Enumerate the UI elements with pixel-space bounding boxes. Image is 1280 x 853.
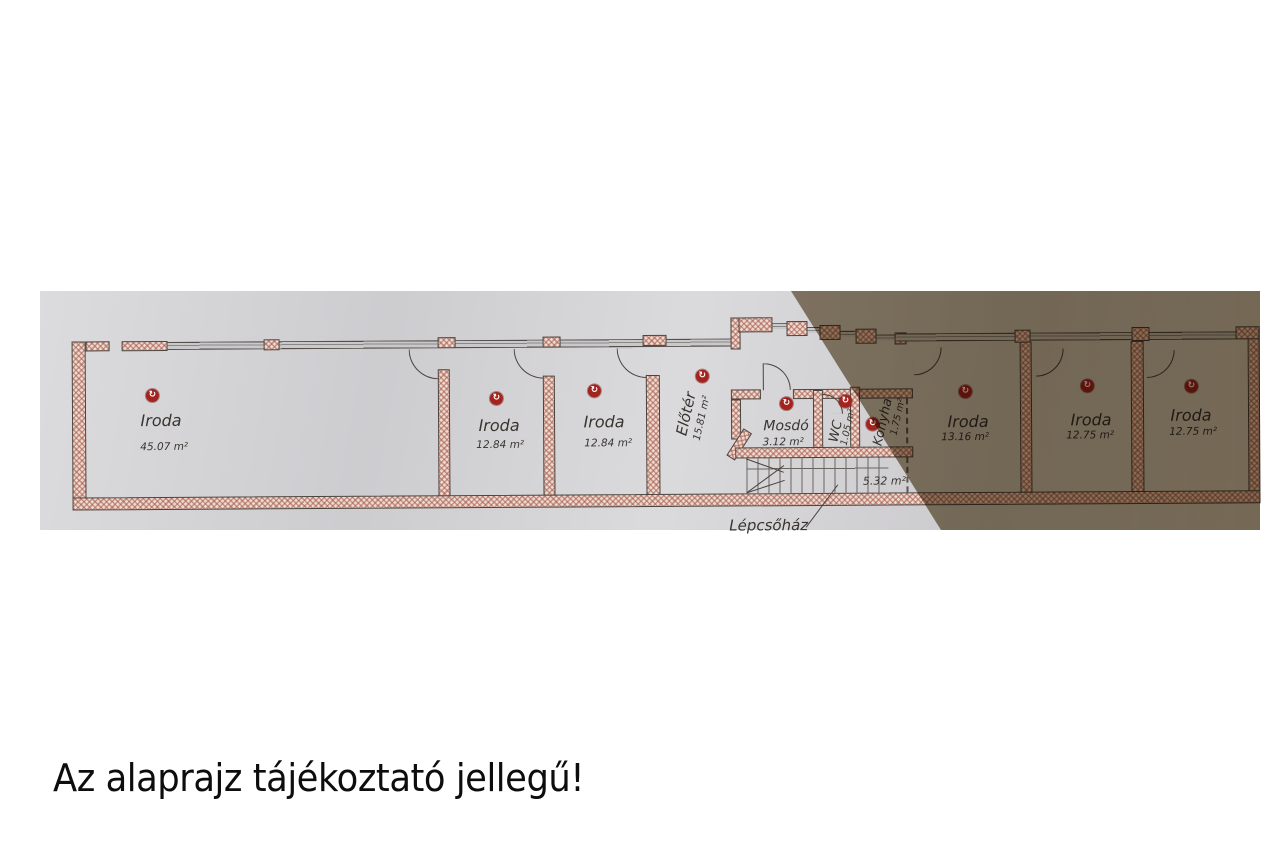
- door-arc: [514, 349, 544, 379]
- door-arc: [409, 349, 439, 379]
- room-name: Iroda: [116, 411, 206, 431]
- window-mullion-block: [1131, 327, 1149, 341]
- stairs-label: Lépcsőház: [719, 516, 819, 535]
- room-area: 45.07 m²: [119, 441, 209, 454]
- entry-wall-step: [819, 325, 840, 340]
- room-name: Iroda: [1146, 405, 1236, 425]
- wall-left: [72, 341, 87, 510]
- wall-bottom: [73, 490, 1261, 510]
- camera-marker: ↻: [588, 384, 601, 397]
- room-name: Iroda: [923, 412, 1013, 432]
- entry-window: [807, 327, 819, 333]
- wall-top-right-corner: [1235, 326, 1259, 339]
- room-area: 13.16 m²: [920, 431, 1010, 444]
- window-mullion-block: [543, 337, 561, 348]
- window-mullion-block: [264, 339, 280, 350]
- window-mullion-block: [643, 335, 667, 346]
- mosdo-top-wall: [731, 389, 761, 399]
- camera-marker: ↻: [1185, 380, 1198, 393]
- room-area: 12.84 m²: [455, 439, 545, 452]
- camera-marker: ↻: [1081, 379, 1094, 392]
- floorplan-drawing: ↻ ↻ ↻ ↻ ↻ ↻ ↻ ↻ ↻ ↻ Iroda 45.07 m² Iroda…: [39, 287, 1260, 533]
- disclaimer-caption: Az alaprajz tájékoztató jellegű!: [53, 756, 584, 800]
- partition-wall: [646, 375, 661, 495]
- room-area: 12.75 m²: [1045, 429, 1135, 442]
- room-area: 3.12 m²: [738, 436, 828, 449]
- wall-right: [1248, 328, 1261, 491]
- room-name: Iroda: [1046, 410, 1136, 430]
- room-name: Iroda: [559, 412, 649, 432]
- room-name: Mosdó: [741, 418, 831, 435]
- entry-door-leaf: [763, 363, 764, 390]
- entry-window: [841, 331, 856, 337]
- room-name: Iroda: [454, 416, 544, 436]
- camera-marker: ↻: [146, 389, 159, 402]
- camera-marker: ↻: [959, 385, 972, 398]
- door-arc: [914, 347, 942, 375]
- window-mullion-block: [438, 337, 456, 348]
- partition-wall: [1020, 342, 1033, 493]
- entry-wall-step: [856, 329, 877, 344]
- room-area: 12.84 m²: [563, 437, 653, 450]
- wall-top-corner-stub: [86, 341, 110, 351]
- camera-marker: ↻: [490, 392, 503, 405]
- stairs-area: 5.32 m²: [844, 474, 924, 487]
- entry-wall-step: [738, 317, 772, 332]
- camera-marker: ↻: [780, 397, 793, 410]
- partition-wall: [438, 369, 451, 496]
- door-arc: [1036, 348, 1064, 376]
- door-arc: [1147, 350, 1175, 378]
- window-band-right: [897, 331, 1248, 341]
- entry-wall-step: [786, 321, 807, 336]
- entry-door-arc: [764, 363, 791, 390]
- room-area: 12.75 m²: [1148, 425, 1238, 438]
- entry-window: [772, 323, 786, 329]
- partition-wall: [543, 376, 556, 496]
- wall-top-segment: [122, 341, 168, 351]
- floorplan-photo: ↻ ↻ ↻ ↻ ↻ ↻ ↻ ↻ ↻ ↻ Iroda 45.07 m² Iroda…: [40, 291, 1260, 530]
- door-arc: [617, 348, 647, 378]
